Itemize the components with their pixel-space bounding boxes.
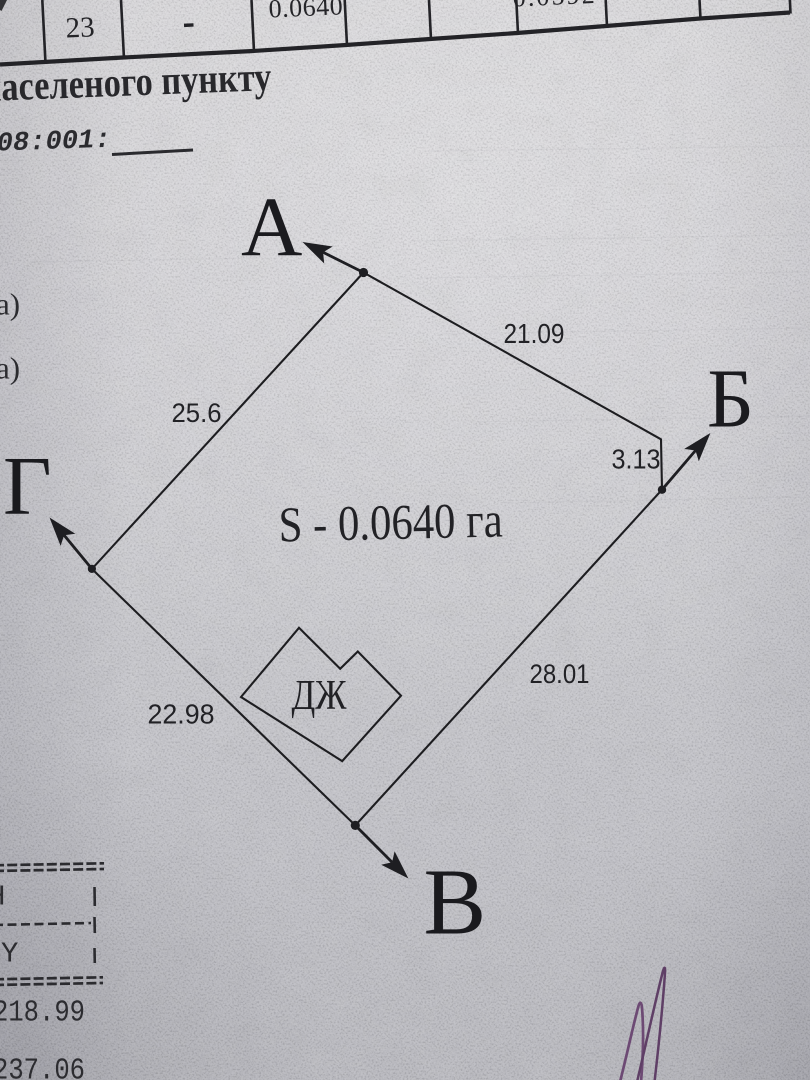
svg-text:ДЖ: ДЖ [292,673,347,719]
svg-text:S - 0.0640 га: S - 0.0640 га [278,491,503,552]
svg-text:0.0640: 0.0640 [268,0,343,23]
svg-text:А: А [241,181,302,275]
svg-text:28.01: 28.01 [530,659,590,689]
svg-text:22.98: 22.98 [148,699,215,730]
svg-text:23: 23 [65,11,95,44]
svg-text:25.6: 25.6 [172,398,222,428]
svg-text:Y: Y [1,938,18,971]
svg-text:21.09: 21.09 [504,318,565,349]
svg-text:218.99: 218.99 [0,996,85,1031]
svg-text:Г: Г [3,440,52,533]
svg-text:Н: Н [0,881,5,914]
svg-text:3.13: 3.13 [612,444,661,475]
svg-text:а): а) [0,351,20,386]
svg-text:В: В [424,851,487,955]
svg-text:237.06: 237.06 [0,1054,85,1080]
svg-text:а): а) [0,287,20,322]
svg-text:Б: Б [707,353,754,446]
svg-text:08:001:: 08:001: [0,126,111,160]
